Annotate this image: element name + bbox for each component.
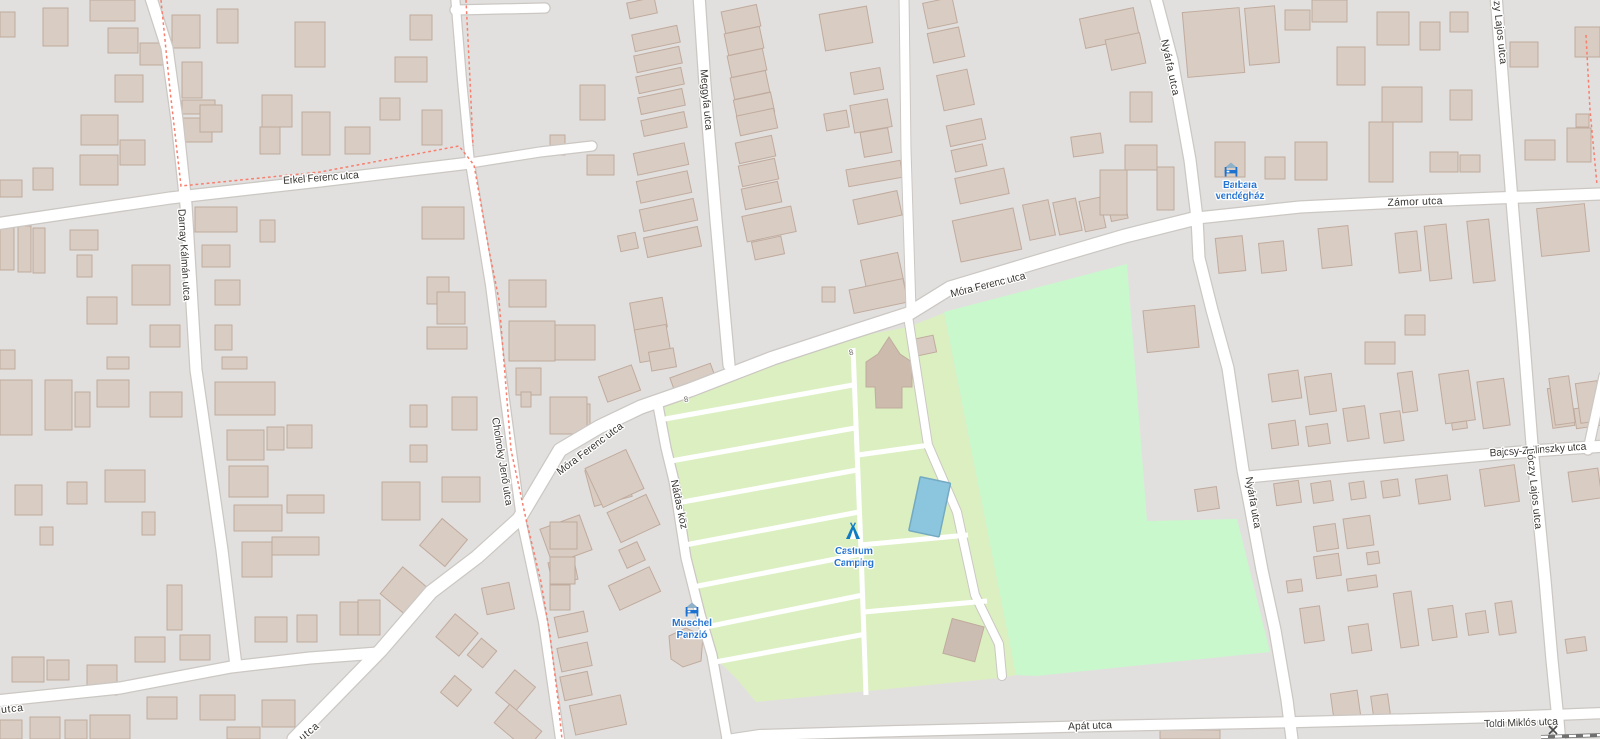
svg-text:vendégház: vendégház: [1216, 190, 1265, 202]
svg-text:Panzió: Panzió: [677, 629, 708, 641]
svg-text:Muschel: Muschel: [672, 617, 712, 629]
svg-text:Zámor utca: Zámor utca: [1387, 195, 1443, 209]
svg-text:utca: utca: [0, 702, 23, 716]
svg-text:Camping: Camping: [834, 557, 874, 569]
svg-text:Castrum: Castrum: [835, 545, 873, 557]
svg-text:Apát utca: Apát utca: [1068, 719, 1113, 733]
